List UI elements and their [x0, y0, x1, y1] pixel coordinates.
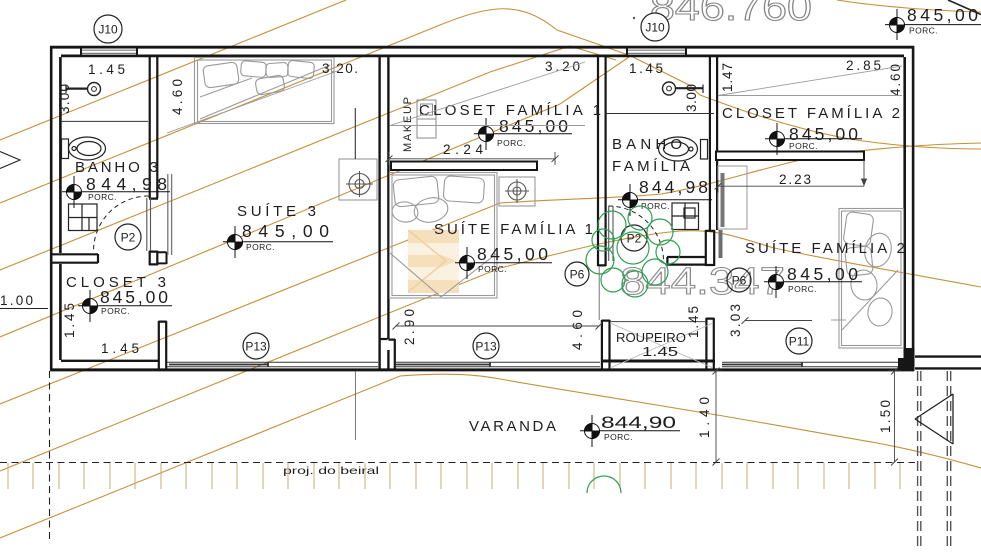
- svg-text:846.760: 846.760: [650, 0, 812, 29]
- svg-text:PORC.: PORC.: [497, 138, 526, 148]
- svg-text:J10: J10: [98, 23, 118, 37]
- svg-text:PORC.: PORC.: [909, 26, 938, 36]
- svg-text:3.20.: 3.20.: [322, 61, 358, 76]
- svg-text:3.00: 3.00: [684, 84, 699, 112]
- svg-text:P6: P6: [570, 268, 585, 282]
- svg-text:1.47: 1.47: [720, 63, 735, 92]
- svg-text:4.60: 4.60: [170, 79, 185, 115]
- svg-text:2.90: 2.90: [402, 309, 417, 345]
- svg-text:1.45: 1.45: [62, 303, 77, 338]
- svg-text:2.23: 2.23: [779, 172, 811, 187]
- svg-text:P2: P2: [121, 231, 136, 245]
- svg-text:1.45: 1.45: [629, 61, 663, 76]
- svg-text:844,90: 844,90: [601, 414, 676, 432]
- svg-text:P13: P13: [475, 340, 497, 354]
- svg-text:P6: P6: [732, 274, 747, 288]
- svg-text:CLOSET FAMÍLIA 2: CLOSET FAMÍLIA 2: [722, 105, 900, 122]
- svg-text:844.347: 844.347: [620, 261, 785, 303]
- svg-text:PORC.: PORC.: [789, 141, 818, 151]
- svg-text:1.45: 1.45: [88, 62, 125, 77]
- svg-text:PORC.: PORC.: [641, 201, 670, 211]
- svg-text:PORC.: PORC.: [478, 264, 507, 274]
- svg-text:PORC.: PORC.: [246, 242, 275, 252]
- svg-text:4.60: 4.60: [570, 310, 585, 350]
- svg-text:2.24: 2.24: [443, 142, 483, 157]
- svg-text:PORC.: PORC.: [788, 284, 817, 294]
- svg-text:1.50: 1.50: [878, 400, 893, 433]
- svg-text:PORC.: PORC.: [88, 192, 117, 202]
- svg-text:PORC.: PORC.: [101, 306, 130, 316]
- svg-text:2.85: 2.85: [846, 58, 881, 73]
- svg-text:1.45: 1.45: [642, 345, 678, 359]
- svg-text:ROUPEIRO: ROUPEIRO: [616, 331, 686, 345]
- svg-text:4.60: 4.60: [888, 64, 903, 96]
- svg-text:1.45: 1.45: [101, 341, 139, 356]
- svg-text:P13: P13: [245, 340, 267, 354]
- svg-text:1.45: 1.45: [686, 306, 701, 338]
- svg-text:1.40: 1.40: [697, 397, 712, 438]
- svg-text:J10: J10: [645, 21, 665, 35]
- svg-text:CLOSET FAMÍLIA 1: CLOSET FAMÍLIA 1: [419, 102, 601, 119]
- svg-text:1.00: 1.00: [0, 293, 33, 308]
- svg-text:VARANDA: VARANDA: [469, 418, 556, 435]
- svg-text:P11: P11: [789, 335, 810, 349]
- svg-text:3.20: 3.20: [545, 59, 580, 74]
- svg-text:3.03: 3.03: [728, 304, 743, 337]
- svg-text:PORC.: PORC.: [604, 432, 633, 442]
- svg-text:3.00: 3.00: [57, 84, 72, 114]
